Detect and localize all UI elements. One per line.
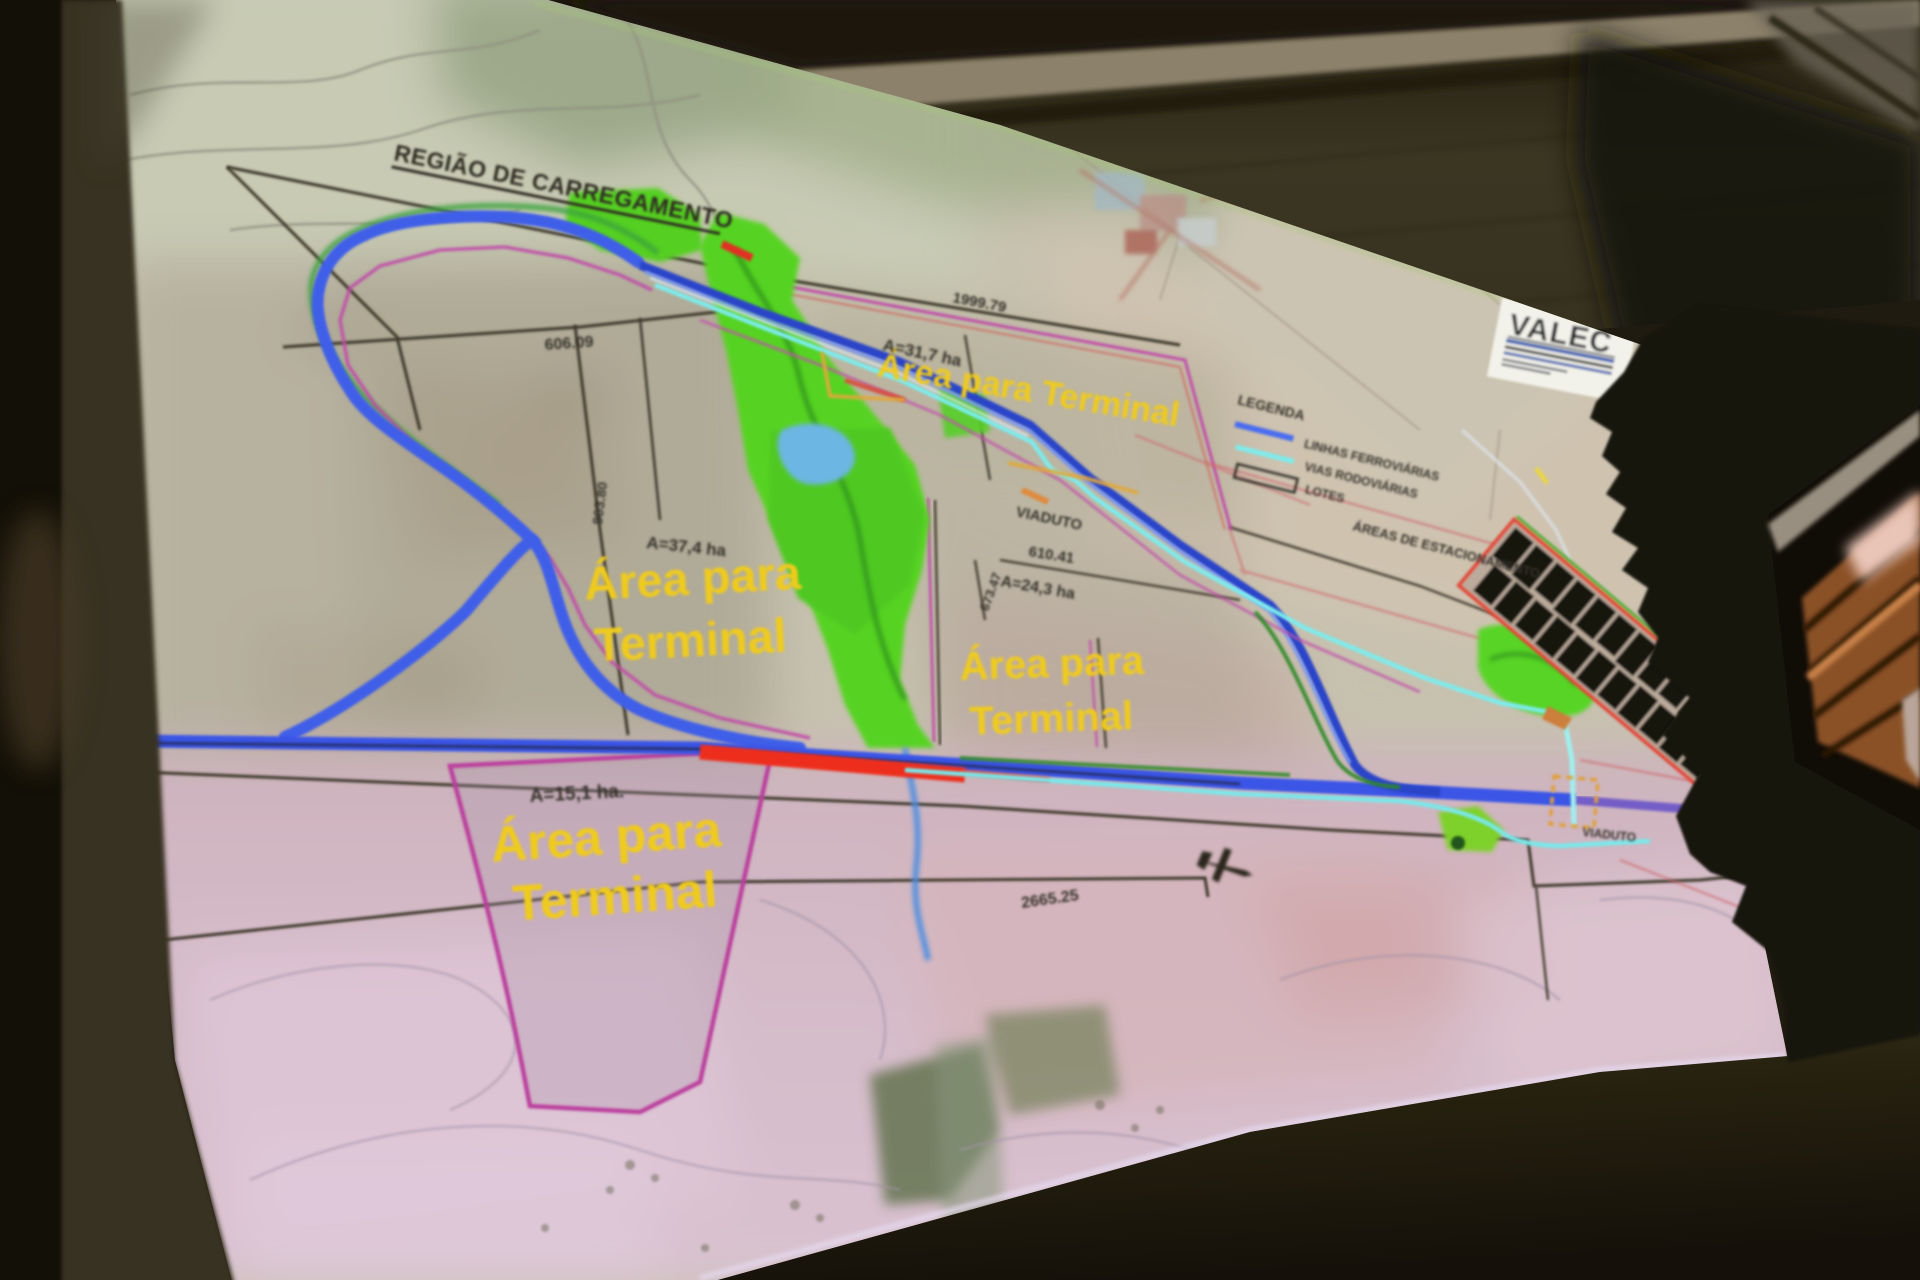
svg-text:Área para: Área para [959,638,1146,689]
svg-text:606.09: 606.09 [544,334,594,354]
svg-text:Terminal: Terminal [969,694,1134,744]
svg-text:Terminal: Terminal [593,609,788,672]
